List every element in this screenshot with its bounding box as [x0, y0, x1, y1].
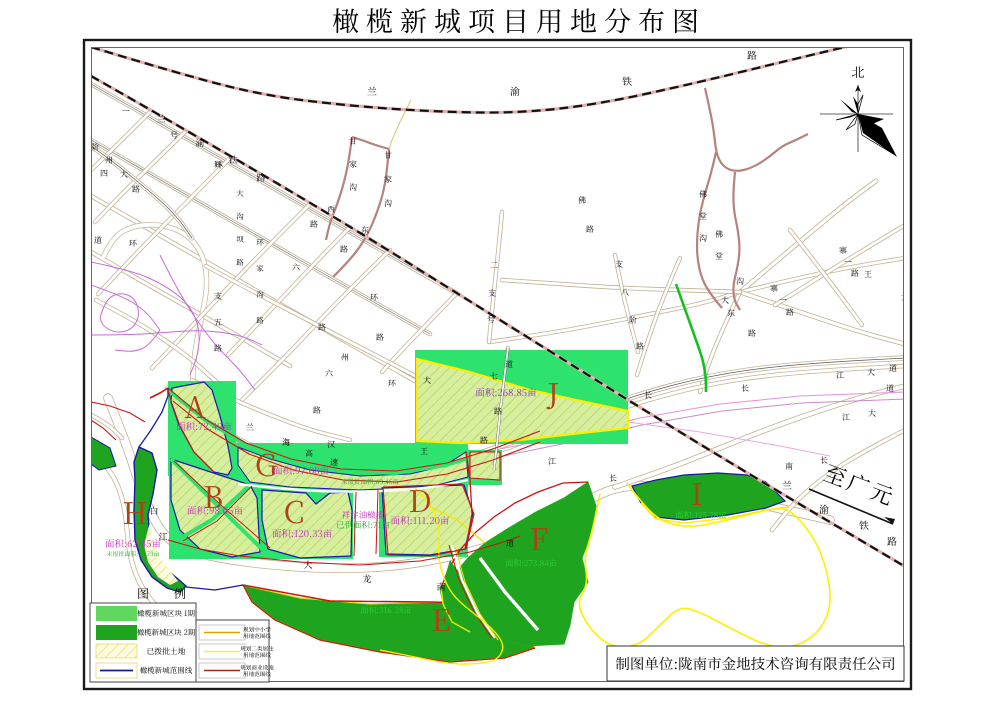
svg-text:橄榄新城范围线: 橄榄新城范围线 [140, 665, 193, 676]
svg-text:H: H [122, 489, 148, 533]
svg-text:路: 路 [586, 224, 594, 235]
svg-text:沟: 沟 [256, 289, 264, 300]
svg-text:阶: 阶 [629, 315, 637, 326]
svg-text:面积:111.20亩: 面积:111.20亩 [391, 513, 450, 527]
svg-text:路: 路 [494, 406, 502, 417]
svg-text:路: 路 [480, 435, 488, 446]
svg-text:路: 路 [310, 219, 318, 230]
svg-text:佛: 佛 [699, 189, 707, 200]
svg-text:沟: 沟 [384, 198, 392, 209]
svg-text:州: 州 [341, 352, 349, 363]
svg-text:铁: 铁 [859, 517, 869, 532]
svg-text:白: 白 [149, 504, 158, 517]
svg-text:江: 江 [158, 530, 167, 543]
svg-text:铁: 铁 [622, 73, 632, 88]
svg-text:佛: 佛 [715, 229, 723, 240]
svg-text:大: 大 [867, 367, 875, 378]
svg-text:路: 路 [786, 307, 794, 318]
svg-text:支: 支 [488, 288, 496, 299]
svg-text:高: 高 [305, 448, 313, 459]
svg-text:橄榄新城项目用地分布图: 橄榄新城项目用地分布图 [332, 0, 706, 39]
svg-text:沟: 沟 [349, 182, 357, 193]
svg-text:橄榄新城区块 1期: 橄榄新城区块 1期 [137, 608, 195, 619]
svg-text:一: 一 [779, 295, 787, 306]
svg-text:面积:125.78亩: 面积:125.78亩 [676, 510, 727, 521]
svg-text:江: 江 [842, 412, 850, 423]
svg-text:汉: 汉 [327, 439, 335, 450]
svg-text:大: 大 [303, 558, 312, 571]
svg-text:西: 西 [327, 204, 335, 215]
svg-text:路: 路 [851, 268, 859, 279]
svg-text:北: 北 [851, 62, 864, 81]
svg-text:用地范围线: 用地范围线 [243, 670, 271, 678]
svg-text:八: 八 [621, 287, 629, 298]
svg-text:支: 支 [615, 259, 623, 270]
svg-text:道: 道 [94, 235, 102, 246]
svg-text:东: 东 [361, 225, 369, 236]
svg-text:I: I [691, 470, 703, 514]
svg-text:用地范围线: 用地范围线 [243, 651, 271, 659]
svg-text:大: 大 [868, 408, 876, 419]
svg-text:路: 路 [340, 244, 348, 255]
svg-text:南: 南 [436, 580, 445, 593]
svg-text:五: 五 [214, 317, 222, 328]
svg-text:路: 路 [636, 341, 644, 352]
svg-text:沟: 沟 [699, 233, 707, 244]
svg-text:家: 家 [256, 263, 264, 274]
svg-text:路: 路 [236, 257, 244, 268]
svg-text:江: 江 [548, 456, 556, 467]
svg-text:佛: 佛 [578, 195, 586, 206]
svg-text:面积:62.45亩: 面积:62.45亩 [105, 536, 161, 550]
svg-text:例: 例 [174, 585, 186, 602]
svg-text:面积:273.84亩: 面积:273.84亩 [505, 558, 556, 569]
svg-text:面积:316.28亩: 面积:316.28亩 [361, 605, 412, 616]
svg-text:路: 路 [748, 328, 756, 339]
svg-text:家: 家 [349, 159, 357, 170]
svg-text:甘: 甘 [349, 136, 357, 147]
svg-text:道: 道 [506, 538, 514, 549]
svg-text:环: 环 [129, 238, 137, 249]
svg-text:一: 一 [844, 257, 852, 268]
svg-text:号: 号 [170, 130, 178, 141]
svg-text:图: 图 [137, 585, 149, 602]
svg-text:甘: 甘 [384, 150, 392, 161]
svg-text:阶: 阶 [91, 142, 99, 153]
svg-text:道: 道 [889, 363, 897, 374]
svg-text:路: 路 [256, 315, 264, 326]
svg-text:E: E [431, 596, 451, 640]
svg-text:兰: 兰 [782, 477, 792, 492]
svg-text:寨: 寨 [839, 245, 847, 256]
svg-text:渝: 渝 [819, 501, 829, 516]
svg-text:海: 海 [282, 437, 290, 448]
svg-text:J: J [546, 370, 559, 414]
svg-text:面积:120.33亩: 面积:120.33亩 [272, 526, 333, 540]
svg-text:沟: 沟 [236, 211, 244, 222]
svg-text:家: 家 [384, 174, 392, 185]
svg-text:路: 路 [214, 343, 222, 354]
svg-text:堂: 堂 [715, 251, 723, 262]
svg-text:王: 王 [864, 269, 872, 280]
svg-text:道: 道 [886, 383, 894, 394]
svg-text:面积:98.05亩: 面积:98.05亩 [187, 503, 243, 517]
svg-text:坝: 坝 [236, 234, 244, 245]
svg-text:大: 大 [236, 188, 244, 199]
svg-text:东: 东 [727, 308, 735, 319]
svg-text:兰: 兰 [246, 422, 254, 433]
svg-text:长: 长 [741, 383, 749, 394]
svg-text:环: 环 [256, 237, 264, 248]
svg-text:寨: 寨 [770, 283, 778, 294]
svg-text:南: 南 [785, 461, 793, 472]
svg-text:路: 路 [747, 47, 757, 62]
svg-text:一: 一 [122, 106, 130, 117]
svg-text:堂: 堂 [699, 211, 707, 222]
svg-text:环: 环 [388, 378, 396, 389]
svg-text:用地范围线: 用地范围线 [243, 632, 271, 640]
svg-text:橄榄新城区块 2期: 橄榄新城区块 2期 [137, 627, 196, 638]
svg-text:路: 路 [313, 405, 321, 416]
svg-text:速: 速 [330, 457, 338, 468]
svg-text:沟: 沟 [736, 276, 744, 287]
svg-text:路: 路 [132, 184, 140, 195]
svg-text:大: 大 [423, 375, 431, 386]
svg-text:江: 江 [836, 370, 844, 381]
svg-text:已供面积:71亩: 已供面积:71亩 [336, 519, 390, 531]
svg-text:路: 路 [376, 332, 384, 343]
svg-text:州: 州 [105, 155, 113, 166]
svg-text:兰: 兰 [367, 83, 377, 98]
svg-text:长: 长 [609, 473, 617, 484]
svg-text:面积:268.85亩: 面积:268.85亩 [475, 385, 537, 399]
svg-text:路: 路 [318, 322, 326, 333]
svg-text:制图单位:陇南市金地技术咨询有限责任公司: 制图单位:陇南市金地技术咨询有限责任公司 [615, 653, 895, 674]
svg-text:龙: 龙 [362, 572, 371, 585]
svg-text:已拨批土地: 已拨批土地 [147, 646, 186, 657]
svg-text:渝: 渝 [195, 136, 204, 149]
svg-text:支: 支 [214, 291, 222, 302]
svg-text:七: 七 [490, 371, 498, 382]
svg-text:六: 六 [292, 262, 300, 273]
svg-text:渝: 渝 [510, 83, 520, 98]
svg-text:王: 王 [420, 446, 428, 457]
svg-text:四: 四 [100, 168, 108, 179]
svg-text:未报批面积:63.46亩: 未报批面积:63.46亩 [341, 477, 399, 486]
svg-text:六: 六 [325, 368, 333, 379]
svg-text:大: 大 [721, 295, 729, 306]
svg-text:二: 二 [490, 260, 498, 271]
svg-text:道: 道 [505, 359, 513, 370]
svg-text:面积:97.08亩: 面积:97.08亩 [273, 463, 329, 477]
svg-text:环: 环 [215, 160, 223, 171]
svg-text:长: 长 [644, 390, 652, 401]
svg-text:号: 号 [487, 314, 495, 325]
svg-text:路: 路 [256, 171, 265, 184]
svg-text:未报批面积:31.73亩: 未报批面积:31.73亩 [107, 549, 160, 558]
svg-text:环: 环 [370, 292, 378, 303]
svg-text:F: F [530, 515, 549, 559]
svg-text:路: 路 [887, 533, 897, 548]
svg-text:面积:72.49亩: 面积:72.49亩 [176, 419, 232, 433]
svg-text:铁: 铁 [228, 153, 237, 166]
svg-text:大: 大 [120, 169, 128, 180]
svg-text:兰: 兰 [156, 112, 165, 125]
